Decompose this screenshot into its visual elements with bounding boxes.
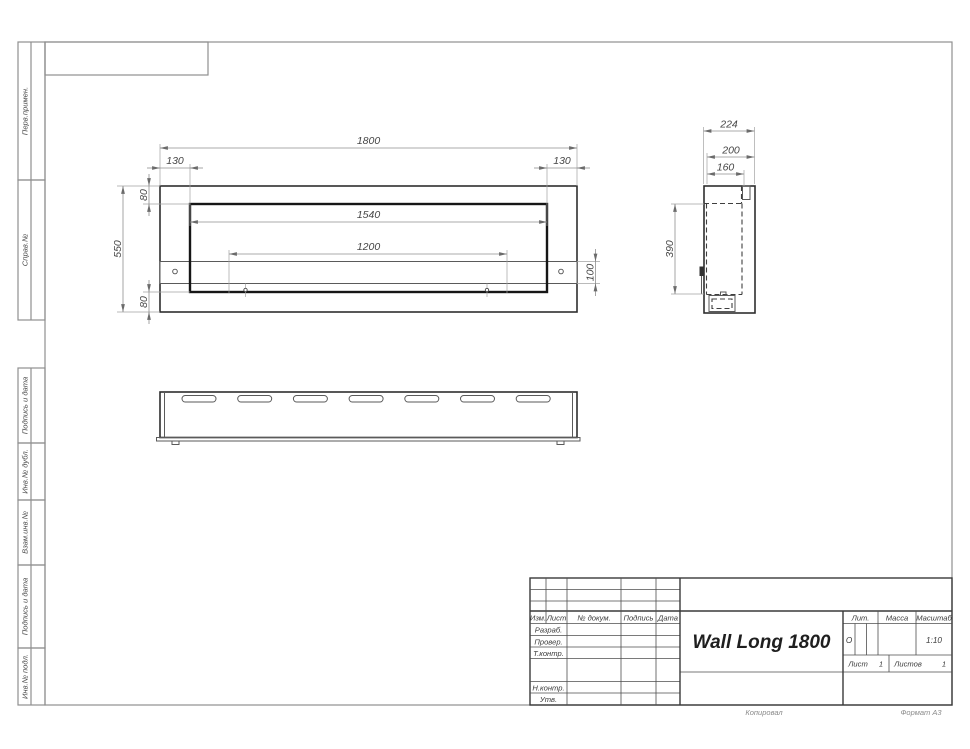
margin-box-podpis-data-2: Подпись и дата (18, 565, 45, 648)
bottom-tab-left (172, 441, 179, 445)
dim-front-bottom-inset: 80 (138, 280, 150, 324)
top-left-designation-box (45, 42, 208, 75)
svg-text:390: 390 (664, 240, 676, 258)
band-hole-right (559, 269, 564, 274)
svg-text:1540: 1540 (357, 209, 381, 221)
margin-box-podpis-data-1: Подпись и дата (18, 368, 45, 443)
footer-format: Формат А3 (900, 708, 942, 717)
dim-side-inner-depth: 200 (707, 145, 755, 158)
margin-box-vzam-inv: Взам.инв.№ (18, 500, 45, 565)
sheet-value: 1 (879, 660, 883, 669)
footer-copy: Копировал (745, 708, 783, 717)
document-title: Wall Long 1800 (693, 632, 831, 653)
vent-slot (349, 396, 383, 403)
role-razrab: Разраб. (535, 626, 562, 635)
sheets-label: Листов (893, 660, 922, 669)
role-prover: Провер. (534, 638, 562, 647)
col-doc: № докум. (577, 614, 610, 623)
margin-column: Перв.примен. Справ.№ Подпись и дата Инв.… (18, 42, 45, 705)
role-tkontr: Т.контр. (533, 649, 564, 658)
dim-front-opening-width: 1540 (190, 209, 547, 222)
dim-front-total-width: 1800 (160, 135, 577, 148)
margin-label: Перв.примен. (21, 87, 30, 135)
dim-side-depth: 224 (704, 119, 755, 132)
lit-label: Лит. (851, 614, 870, 623)
dim-front-total-height: 550 (112, 186, 124, 312)
dim-front-mount-spacing: 1200 (229, 241, 507, 254)
scale-value: 1:10 (926, 636, 942, 645)
dim-front-offset-right: 130 (534, 155, 590, 168)
bottom-view (157, 392, 581, 445)
margin-label: Справ.№ (21, 234, 30, 266)
vent-slot (461, 396, 495, 403)
col-list: Лист (546, 614, 567, 623)
svg-text:200: 200 (721, 145, 740, 157)
side-top-bracket (743, 186, 751, 200)
margin-box-perv-primen: Перв.примен. (18, 42, 45, 180)
vent-slot (516, 396, 550, 403)
mount-hole-right (485, 288, 488, 291)
svg-text:160: 160 (717, 162, 735, 174)
svg-text:80: 80 (138, 189, 150, 201)
svg-text:130: 130 (553, 155, 571, 167)
side-burner-box (709, 296, 735, 312)
svg-text:550: 550 (112, 240, 124, 258)
side-outer-contour (704, 186, 755, 313)
margin-box-sprav-no: Справ.№ (18, 180, 45, 320)
col-data: Дата (657, 614, 678, 623)
scale-label: Масштаб (916, 614, 952, 623)
role-utv: Утв. (539, 695, 557, 704)
bottom-tab-right (557, 441, 564, 445)
side-wall-bracket (700, 267, 705, 277)
band-hole-left (173, 269, 178, 274)
sheet-frame (45, 42, 952, 705)
footer: Копировал Формат А3 (745, 708, 942, 717)
svg-text:100: 100 (585, 264, 597, 282)
front-view: 1800 130 130 80 1540 (112, 135, 600, 324)
margin-box-inv-dubl: Инв.№ дубл. (18, 443, 45, 500)
mass-label: Масса (886, 614, 908, 623)
col-izm: Изм. (530, 614, 546, 623)
front-mount-band (160, 262, 577, 284)
margin-label: Инв.№ подл. (21, 654, 30, 699)
svg-text:224: 224 (719, 119, 738, 131)
sheet-label: Лист (847, 660, 868, 669)
vent-slot (238, 396, 272, 403)
vent-slot (293, 396, 327, 403)
role-nkontr: Н.контр. (532, 684, 564, 693)
dim-side-box-depth: 160 (707, 162, 744, 175)
svg-text:80: 80 (138, 296, 150, 308)
margin-label: Взам.инв.№ (21, 511, 30, 554)
margin-label: Подпись и дата (21, 578, 30, 635)
margin-label: Инв.№ дубл. (21, 449, 30, 494)
svg-text:1800: 1800 (357, 135, 381, 147)
sheets-value: 1 (942, 660, 946, 669)
margin-label: Подпись и дата (21, 377, 30, 434)
drawing-canvas: Перв.примен. Справ.№ Подпись и дата Инв.… (0, 0, 970, 749)
vent-slot (182, 396, 216, 403)
side-view: 224 200 160 390 (664, 119, 755, 314)
margin-box-inv-podl: Инв.№ подл. (18, 648, 45, 705)
svg-text:1200: 1200 (357, 241, 381, 253)
drawing-sheet: Перв.примен. Справ.№ Подпись и дата Инв.… (0, 0, 970, 749)
dim-front-top-inset: 80 (138, 174, 150, 216)
dim-front-offset-left: 130 (147, 155, 203, 168)
bottom-outer-contour (160, 392, 577, 438)
mount-hole-left (244, 288, 247, 291)
title-block: Изм. Лист № докум. Подпись Дата Разраб. … (530, 578, 953, 705)
vent-slot (405, 396, 439, 403)
dim-side-opening-height: 390 (664, 204, 676, 294)
svg-text:130: 130 (166, 155, 184, 167)
lit-value: О (846, 636, 853, 645)
col-podpis: Подпись (623, 614, 653, 623)
dim-front-shelf-height: 100 (585, 249, 597, 296)
